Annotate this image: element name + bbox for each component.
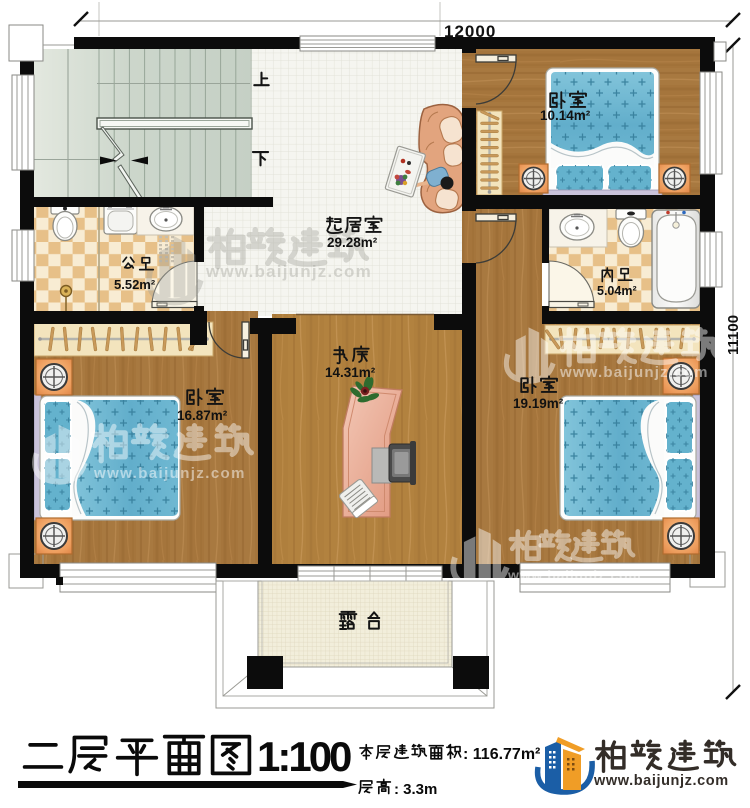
svg-text:14.31m²: 14.31m²: [325, 365, 376, 380]
svg-text:www.baijunjz.com: www.baijunjz.com: [507, 567, 642, 583]
svg-text:12000: 12000: [444, 22, 496, 41]
svg-text:: 116.77m²: : 116.77m²: [463, 746, 540, 763]
svg-text:www.baijunjz.com: www.baijunjz.com: [593, 773, 729, 789]
svg-text:5.04m²: 5.04m²: [597, 284, 637, 298]
svg-text:19.19m²: 19.19m²: [513, 396, 564, 411]
svg-text:www.baijunjz.com: www.baijunjz.com: [205, 262, 372, 281]
svg-text:5.52m²: 5.52m²: [114, 277, 156, 292]
svg-text:1:100: 1:100: [257, 733, 351, 780]
svg-text:10.14m²: 10.14m²: [540, 108, 591, 123]
svg-text:16.87m²: 16.87m²: [177, 408, 228, 423]
svg-text:: 3.3m: : 3.3m: [394, 781, 437, 798]
svg-text:29.28m²: 29.28m²: [327, 235, 378, 250]
svg-text:www.baijunjz.com: www.baijunjz.com: [559, 364, 709, 381]
svg-text:11100: 11100: [725, 315, 742, 355]
svg-text:www.baijunjz.com: www.baijunjz.com: [93, 465, 246, 482]
